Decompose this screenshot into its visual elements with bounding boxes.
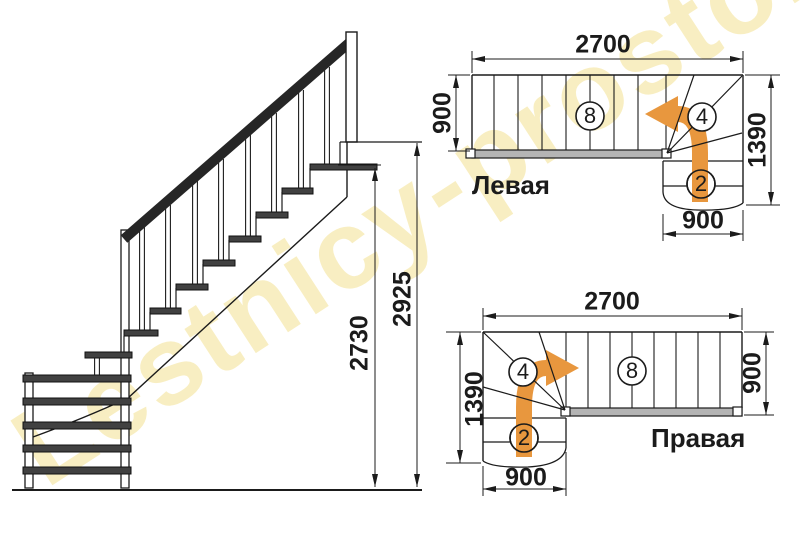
- step-count-4: 4: [517, 359, 529, 385]
- tread: [176, 284, 208, 290]
- plan-right-top-view: [446, 308, 774, 496]
- step-count-2: 2: [518, 425, 530, 451]
- top-newel-post: [346, 32, 357, 142]
- dim-900-bottom-left-plan: 900: [682, 207, 724, 236]
- dim-900-right: 900: [739, 352, 768, 394]
- winder-tread: [23, 422, 131, 429]
- dim-900-bottom-right-plan: 900: [505, 464, 547, 493]
- step-count-2: 2: [695, 171, 707, 197]
- dim-1390-right: 1390: [744, 112, 773, 168]
- winder-tread: [23, 375, 131, 382]
- tread: [150, 308, 181, 314]
- step-count-8: 8: [626, 358, 638, 384]
- balusters: [95, 67, 330, 375]
- tread: [282, 188, 313, 194]
- elevation-side-view: [12, 32, 422, 490]
- tread: [85, 352, 132, 358]
- dim-1390-left: 1390: [461, 371, 490, 427]
- tread: [203, 260, 235, 266]
- dim-2700-right-plan: 2700: [584, 288, 640, 317]
- plan-right-label: Правая: [651, 423, 745, 454]
- winder-tread: [23, 445, 131, 452]
- winder-tread: [23, 467, 131, 474]
- stringer-bar: [472, 150, 668, 158]
- dim-2700-left-plan: 2700: [575, 31, 631, 60]
- tread: [229, 236, 261, 242]
- step-count-8: 8: [584, 103, 596, 129]
- dim-900-left: 900: [429, 92, 458, 134]
- tread: [256, 212, 288, 218]
- arrowhead: [645, 96, 678, 132]
- dim-2925: 2925: [389, 271, 418, 327]
- newel-square: [466, 149, 475, 158]
- stringer-bar: [566, 408, 742, 416]
- handrail: [124, 42, 350, 239]
- dim-2730: 2730: [346, 315, 375, 371]
- newel-square: [561, 407, 570, 416]
- winder-tread: [23, 398, 131, 405]
- newel-square: [733, 407, 742, 416]
- risers: [124, 142, 340, 352]
- stair-drawing-page: Lestnicy-prosto.ru: [0, 0, 800, 549]
- plan-left-label: Левая: [472, 170, 550, 201]
- plan-left-top-view: [448, 51, 780, 241]
- tread: [124, 330, 158, 336]
- step-count-4: 4: [696, 104, 708, 130]
- treads: [23, 164, 377, 474]
